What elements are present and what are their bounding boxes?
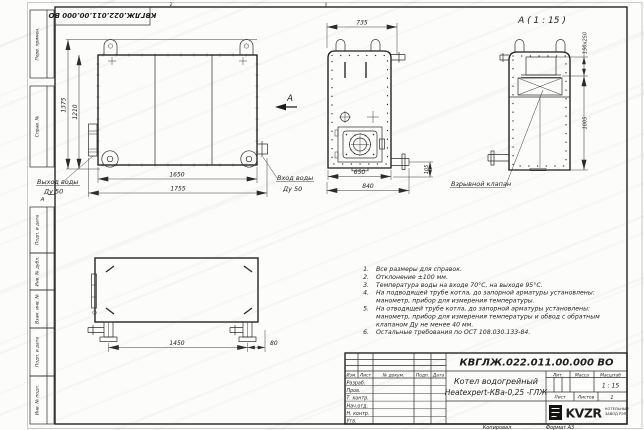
stamp-perv-primen: Перв. примен. — [35, 28, 41, 61]
drawing-sheet: 2 А Перв. примен. Справ. № Подп. и дата … — [0, 0, 644, 430]
dim-front-length-overall: 1755 — [170, 186, 185, 193]
kvzr-logo: KVZR КОТЕЛЬНЫЙ ЗАВОД РЭП — [549, 405, 629, 421]
outlet-dn-label: Ду 50 — [43, 188, 63, 196]
tb-mass-label: Масса — [575, 372, 589, 378]
tb-col-podp: Подп. — [416, 372, 429, 378]
note-text: Остальные требования по ОСТ 108.030.133-… — [376, 328, 530, 336]
note-text: На отводящей трубе котла, до запорной ар… — [376, 305, 590, 313]
stamp-podp-data-2: Подп. и дата — [35, 337, 41, 367]
notes-list: 1. Все размеры для справок. 2. Отклонени… — [363, 266, 600, 336]
footer-copied: Копировал — [483, 425, 512, 430]
explosion-valve-label: Взрывной клапан — [451, 180, 511, 188]
note-num: 3. — [363, 282, 369, 289]
dim-side-top: 735 — [356, 20, 368, 27]
stamp-podp-data-1: Подп. и дата — [35, 215, 41, 245]
note-text: Температура воды на входе 70°С, на выход… — [376, 281, 543, 289]
stamp-inv-dubl: Инв. № дубл. — [35, 256, 41, 286]
doc-number-top: КВГЛЖ.022.011.00.000 ВО — [49, 11, 157, 19]
zone-number-top: 2 — [170, 2, 173, 8]
tb-scale-value: 1 : 15 — [602, 383, 619, 390]
tb-col-data: Дата — [432, 372, 445, 378]
footer-format: Формат А3 — [546, 425, 574, 430]
front-view: 1375 1210 1650 1755 Выход воды Ду 50 Вхо… — [36, 40, 314, 198]
dim-front-height: 1375 — [61, 97, 68, 112]
tb-sheet-label: Лист — [553, 395, 566, 401]
tb-row-tkontr: Т. контр. — [347, 396, 369, 402]
note-num: 5. — [363, 306, 369, 313]
view-a-label: А — [286, 94, 293, 104]
stamp-inv-podl: Инв. № подл. — [35, 385, 41, 415]
company-name-2: ЗАВОД РЭП — [605, 412, 627, 416]
title-block: КВГЛЖ.022.011.00.000 ВО Котел водогрейны… — [345, 353, 629, 424]
note-text: На подводящей трубе котла, до запорной а… — [376, 289, 595, 297]
tb-doc-number: КВГЛЖ.022.011.00.000 ВО — [459, 358, 614, 369]
note-num: 1. — [363, 266, 369, 273]
tb-scale-label: Масштаб — [600, 372, 621, 378]
outlet-label: Выход воды — [37, 178, 78, 186]
note-num: 6. — [363, 329, 369, 336]
note-text: Отклонение ±100 мм. — [376, 274, 448, 281]
dim-bottom-span: 1450 — [169, 340, 184, 347]
margin-stamps: Перв. примен. Справ. № Подп. и дата Инв.… — [30, 10, 54, 424]
inlet-label: Вход воды — [277, 174, 313, 182]
dim-front-length: 1650 — [169, 172, 184, 179]
tb-product-name-2: Heatexpert-КВа-0,25 -ГЛЖ — [445, 388, 548, 397]
note-text: манометр, прибор для измерения температу… — [376, 312, 600, 320]
kvzr-logo-text: KVZR — [565, 406, 602, 421]
sheet-footer: Копировал Формат А3 — [483, 425, 575, 430]
view-a-arrow: А — [275, 94, 297, 110]
stamp-sprav-no: Справ. № — [35, 115, 41, 137]
tb-lit-label: Лит. — [552, 372, 563, 378]
stamp-vzam-inv: Взам. инв. № — [35, 294, 41, 324]
tb-sheets-value: 1 — [610, 395, 613, 401]
tb-col-izm: Изм. — [346, 372, 356, 378]
dim-detail-height: 1005 — [583, 117, 589, 130]
dim-side-pipe: 105 — [424, 165, 430, 175]
note-text: Все размеры для справок. — [376, 266, 462, 273]
doc-number-top-box: КВГЛЖ.022.011.00.000 ВО — [49, 7, 157, 25]
note-text: манометр, прибор для измерения температу… — [376, 297, 535, 305]
note-num: 4. — [363, 290, 369, 297]
tb-row-prov: Пров. — [347, 388, 361, 394]
bottom-view: 1450 80 — [88, 258, 278, 352]
inlet-dn-label: Ду 50 — [282, 185, 302, 193]
dim-side-overall: 840 — [362, 183, 374, 190]
detail-a-title: А ( 1 : 15 ) — [517, 16, 566, 26]
tb-row-razrab: Разраб. — [347, 380, 366, 386]
note-num: 2. — [363, 274, 369, 281]
side-view: 735 650 840 105 — [327, 20, 433, 195]
tb-row-nkontr: Н. контр. — [347, 411, 370, 417]
dim-front-height-inner: 1210 — [72, 104, 79, 119]
tb-row-nachotd: Нач.отд. — [347, 403, 368, 409]
tb-col-doc: № докум. — [382, 372, 405, 378]
dim-bottom-offset: 80 — [270, 340, 278, 347]
dim-side-body: 650 — [354, 169, 366, 176]
detail-a-view: А ( 1 : 15 ) Взрывной клапан 150x250 100… — [450, 16, 589, 188]
tb-row-utv: Утв. — [347, 418, 357, 424]
tb-col-list: Лист — [359, 372, 372, 378]
drawing-canvas: 2 А Перв. примен. Справ. № Подп. и дата … — [0, 0, 644, 430]
tb-sheets-label: Листов — [577, 395, 595, 401]
zone-letter-left: А — [40, 197, 45, 203]
tb-product-name-1: Котел водогрейный — [454, 377, 538, 386]
company-name-1: КОТЕЛЬНЫЙ — [605, 406, 629, 411]
note-text: клапаном Ду не менее 40 мм. — [376, 321, 473, 328]
dim-valve-size: 150x250 — [583, 32, 589, 54]
